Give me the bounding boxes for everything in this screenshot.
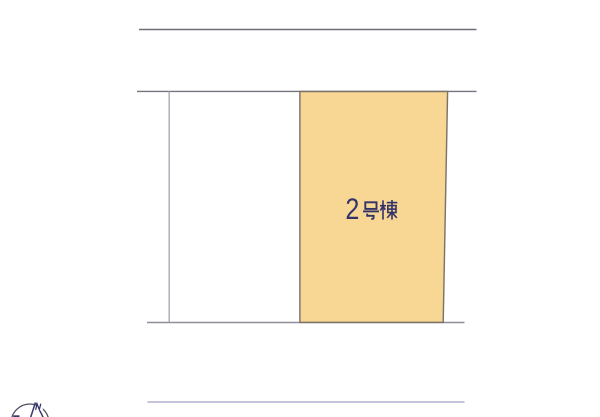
svg-text:2: 2 (345, 192, 359, 225)
